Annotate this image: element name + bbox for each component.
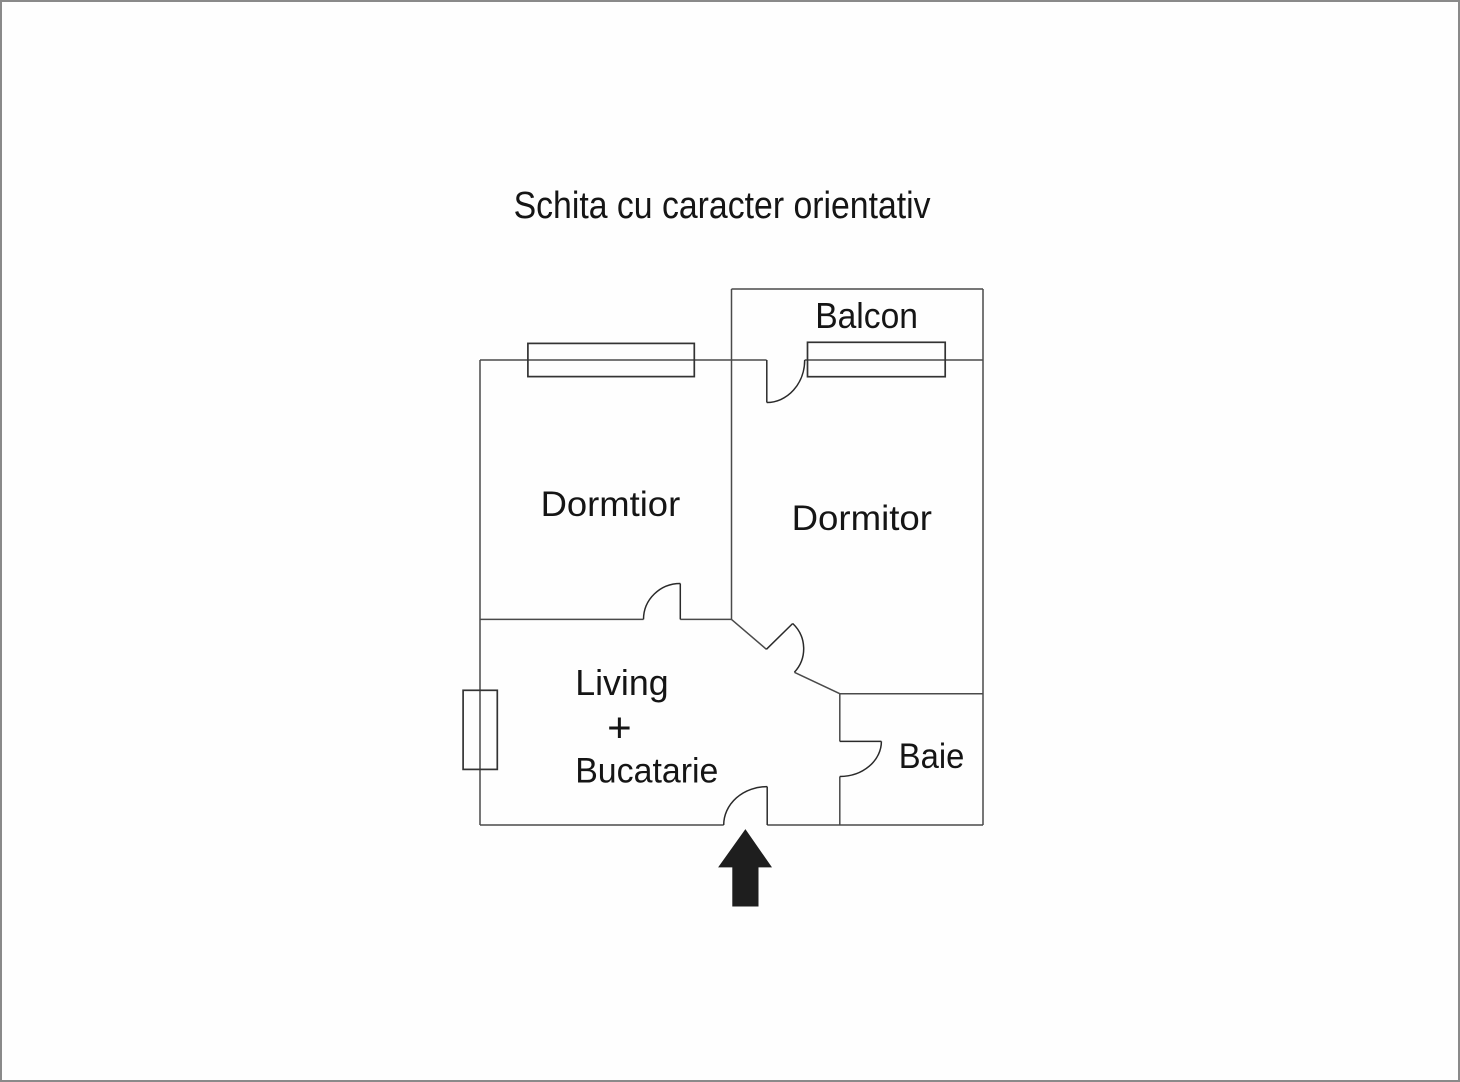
svg-text:Dormtior: Dormtior	[541, 484, 681, 524]
svg-text:Living: Living	[575, 662, 669, 703]
svg-text:Dormitor: Dormitor	[792, 498, 933, 538]
svg-text:Schita cu caracter orientativ: Schita cu caracter orientativ	[514, 185, 931, 227]
svg-text:Baie: Baie	[899, 736, 965, 776]
svg-text:Balcon: Balcon	[815, 295, 918, 336]
svg-text:Bucatarie: Bucatarie	[575, 750, 718, 790]
svg-text:+: +	[607, 703, 632, 750]
